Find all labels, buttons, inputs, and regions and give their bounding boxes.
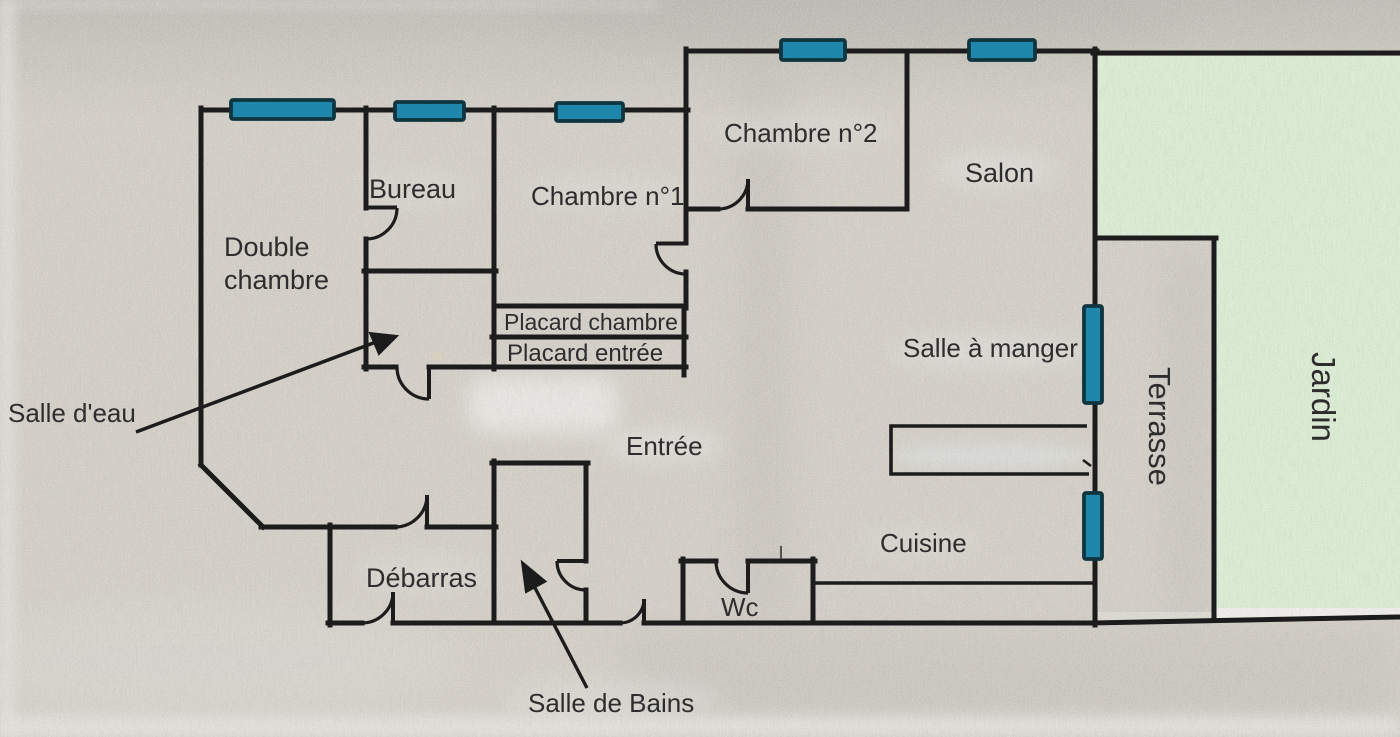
svg-text:Placard chambre: Placard chambre bbox=[504, 309, 678, 335]
svg-text:Cuisine: Cuisine bbox=[880, 528, 967, 558]
svg-text:Entrée: Entrée bbox=[626, 431, 703, 461]
svg-text:Chambre n°2: Chambre n°2 bbox=[724, 118, 877, 148]
svg-text:Débarras: Débarras bbox=[366, 563, 477, 593]
svg-text:Salle à manger: Salle à manger bbox=[903, 333, 1078, 363]
svg-text:Placard entrée: Placard entrée bbox=[507, 340, 663, 367]
svg-text:Salle d'eau: Salle d'eau bbox=[8, 398, 136, 428]
svg-text:Chambre n°1: Chambre n°1 bbox=[531, 181, 684, 211]
svg-text:Double: Double bbox=[224, 232, 310, 262]
svg-text:Salle de Bains: Salle de Bains bbox=[528, 688, 694, 718]
svg-text:Bureau: Bureau bbox=[369, 174, 456, 204]
svg-text:Terrasse: Terrasse bbox=[1142, 367, 1177, 486]
svg-text:chambre: chambre bbox=[224, 265, 329, 295]
svg-text:Jardin: Jardin bbox=[1305, 352, 1342, 442]
svg-text:Salon: Salon bbox=[965, 158, 1034, 188]
svg-text:Wc: Wc bbox=[721, 592, 759, 622]
